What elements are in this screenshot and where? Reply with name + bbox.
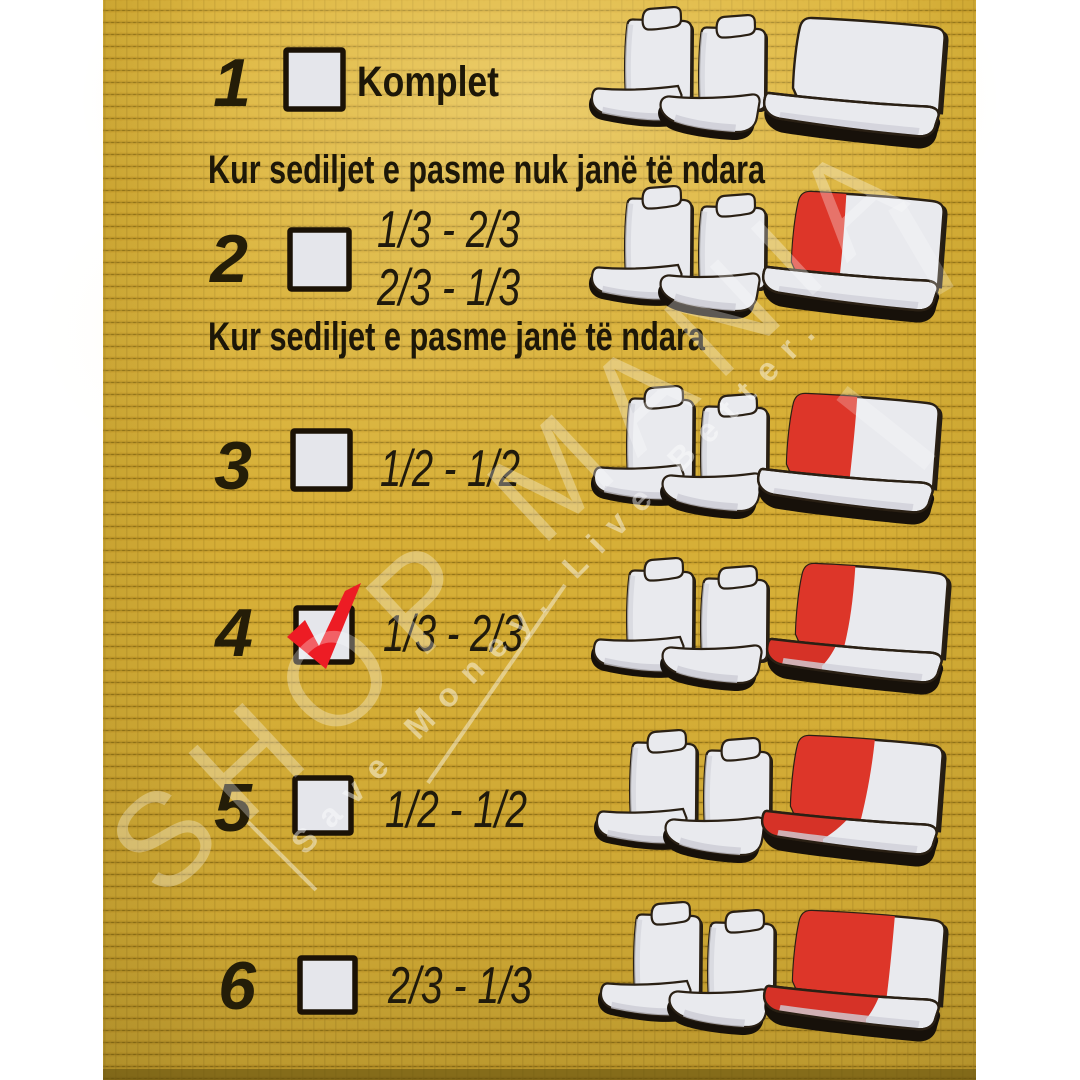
svg-text:Kur sediljet e pasme nuk janë: Kur sediljet e pasme nuk janë të ndara: [208, 148, 766, 192]
svg-text:Komplet: Komplet: [357, 58, 499, 106]
svg-text:2/3 - 1/3: 2/3 - 1/3: [387, 957, 532, 1015]
svg-text:1/2 - 1/2: 1/2 - 1/2: [385, 781, 527, 839]
svg-text:6: 6: [218, 948, 257, 1024]
svg-text:2/3 - 1/3: 2/3 - 1/3: [376, 259, 520, 317]
svg-text:3: 3: [214, 428, 252, 504]
svg-text:2: 2: [208, 221, 248, 297]
svg-text:1: 1: [213, 45, 251, 121]
svg-text:1/3 - 2/3: 1/3 - 2/3: [377, 201, 520, 259]
